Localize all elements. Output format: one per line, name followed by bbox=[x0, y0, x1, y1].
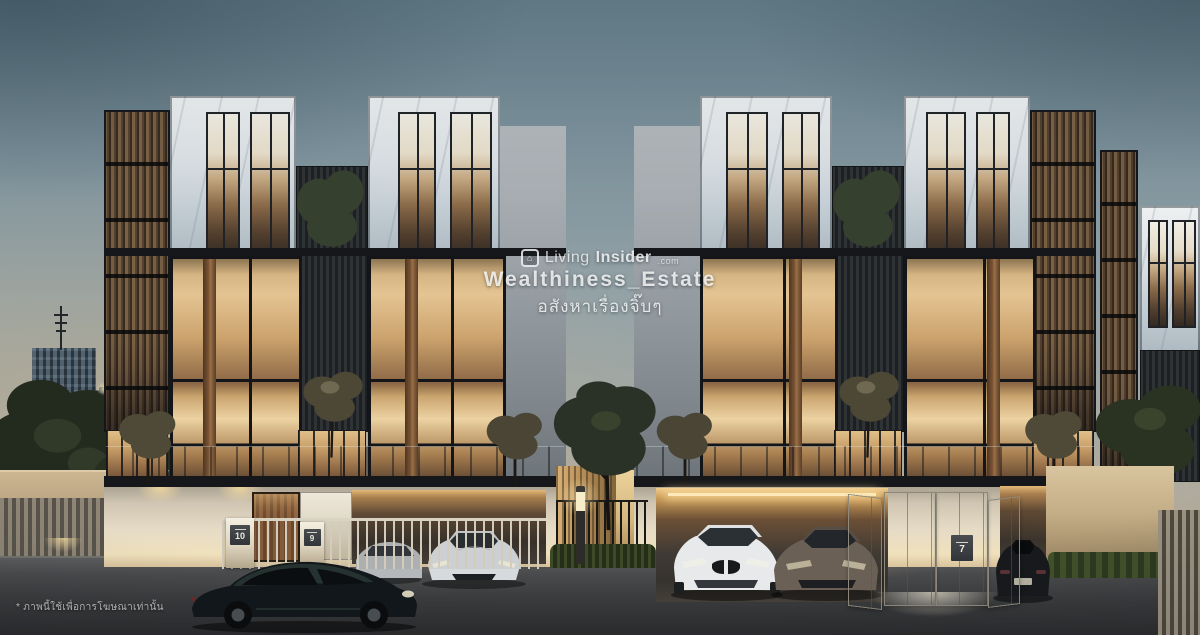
marble-facade-1 bbox=[170, 96, 296, 254]
marble-facade-2 bbox=[368, 96, 500, 254]
facade-window bbox=[976, 112, 1010, 258]
planter-tree bbox=[294, 330, 372, 490]
watermark-tagline: อสังหาเรื่องจิ๊บๆ bbox=[538, 293, 663, 320]
terrace-tree bbox=[478, 400, 552, 492]
facade-window bbox=[206, 112, 240, 258]
bollard-light bbox=[576, 486, 585, 564]
white-folding-gate-leaf bbox=[988, 496, 1020, 608]
brand-living: Living bbox=[545, 249, 590, 267]
marble-facade-4 bbox=[904, 96, 1030, 254]
brand-suffix: .com bbox=[658, 256, 680, 266]
facade-window bbox=[398, 112, 436, 258]
gate-number-plaque: 7 bbox=[951, 535, 973, 561]
facade-window bbox=[450, 112, 492, 258]
perimeter-wall-right bbox=[1046, 466, 1174, 564]
facade-window bbox=[782, 112, 820, 258]
facade-window bbox=[926, 112, 966, 258]
white-folding-gate-leaf bbox=[848, 494, 882, 610]
livinginsider-logo-icon bbox=[521, 249, 539, 267]
facade-window bbox=[250, 112, 290, 258]
hedge-right bbox=[1048, 552, 1168, 578]
architectural-rendering: 10 9 bbox=[0, 0, 1200, 635]
roof-garden-tree bbox=[826, 152, 910, 260]
antenna-bar bbox=[55, 322, 67, 324]
watermark-brand: Living Insider .com bbox=[521, 249, 679, 267]
watermark: Living Insider .com Wealthiness_Estate อ… bbox=[0, 249, 1200, 320]
facade-window bbox=[726, 112, 768, 258]
disclaimer-text: * ภาพนี้ใช้เพื่อการโฆษณาเท่านั้น bbox=[16, 600, 164, 615]
watermark-account: Wealthiness_Estate bbox=[484, 268, 717, 292]
white-folding-gate-panel bbox=[884, 492, 936, 606]
planter-tree bbox=[830, 330, 908, 490]
gate-post-7: 7 bbox=[936, 492, 988, 606]
garage-ceiling-light bbox=[668, 493, 876, 496]
gate-number: 10 bbox=[235, 531, 245, 541]
antenna-bar bbox=[56, 330, 66, 332]
gate-number: 7 bbox=[959, 544, 965, 555]
roof-garden-tree bbox=[290, 152, 374, 260]
gate-number-plaque: 9 bbox=[304, 529, 321, 546]
slat-fence-right bbox=[1158, 510, 1200, 635]
marble-facade-3 bbox=[700, 96, 832, 254]
downlight-glow bbox=[128, 487, 192, 519]
brand-insider: Insider bbox=[596, 249, 652, 267]
courtyard-tree bbox=[544, 350, 668, 554]
terrace-tree bbox=[112, 398, 184, 492]
gate-number: 9 bbox=[310, 534, 314, 543]
gate-number-plaque: 10 bbox=[230, 525, 250, 545]
foreground-sports-car bbox=[186, 549, 422, 635]
